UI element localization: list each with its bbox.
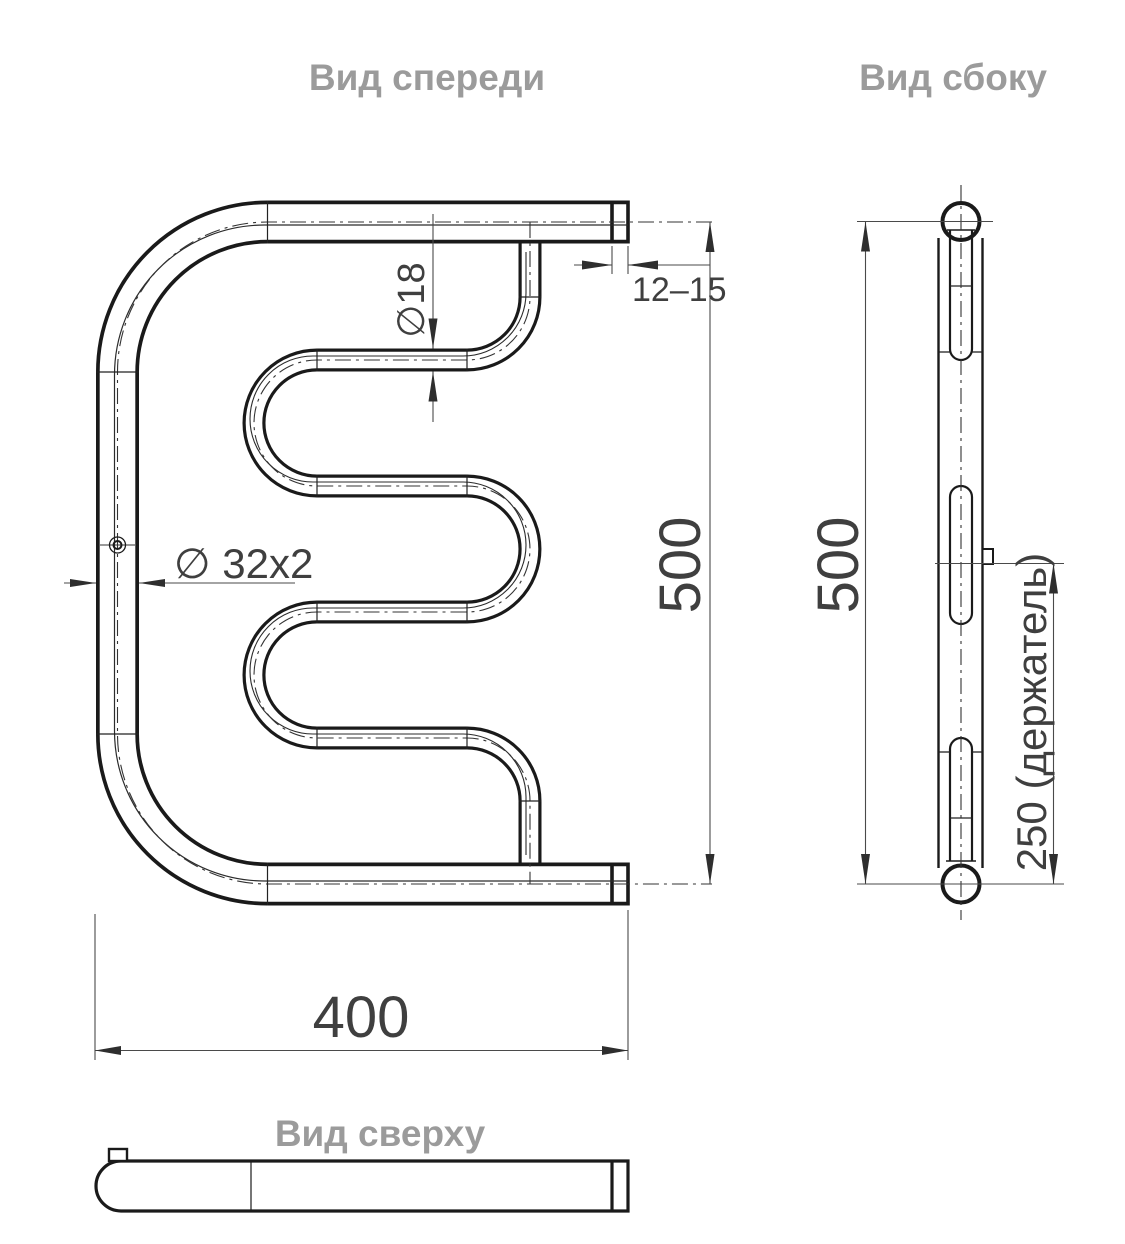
dim-front-height-label: 500 xyxy=(648,517,713,614)
front-dimension-arrows xyxy=(70,222,715,1055)
arrow-down-icon xyxy=(861,854,870,884)
arrow-right-icon xyxy=(602,1046,628,1055)
arrow-up-icon xyxy=(429,372,438,402)
dim-side-height-label: 500 xyxy=(806,517,871,614)
front-view-title: Вид спереди xyxy=(309,57,545,98)
arrow-up-icon xyxy=(861,222,870,252)
top-view-profile xyxy=(96,1161,628,1211)
arrow-left-icon xyxy=(139,579,165,587)
holder-bracket xyxy=(983,549,994,564)
side-view xyxy=(939,185,994,920)
arrow-right-icon xyxy=(582,261,612,270)
top-view-bracket xyxy=(109,1149,127,1161)
drawing-canvas: Вид спереди Вид сбоку Вид сверху ∅18 12–… xyxy=(0,0,1125,1244)
pipe-end-caps xyxy=(612,201,628,906)
dim-tube-diameter-label: ∅18 xyxy=(391,262,433,337)
arrow-down-icon xyxy=(706,854,715,884)
arrow-up-icon xyxy=(706,222,715,252)
dim-pipe-spec-label: ∅ 32x2 xyxy=(174,540,313,587)
front-dimensions xyxy=(64,214,710,1060)
dim-width-label: 400 xyxy=(313,985,410,1050)
top-view xyxy=(96,1149,628,1211)
arrow-left-icon xyxy=(628,261,658,270)
side-view-title: Вид сбоку xyxy=(859,57,1047,98)
dim-end-offset-label: 12–15 xyxy=(632,271,727,309)
tangent-ticks xyxy=(96,201,542,906)
top-view-title: Вид сверху xyxy=(275,1113,486,1154)
arrow-left-icon xyxy=(95,1046,121,1055)
towel-rail-drawing: Вид спереди Вид сбоку Вид сверху ∅18 12–… xyxy=(0,0,1125,1244)
arrow-right-icon xyxy=(70,579,96,587)
dim-holder-label: 250 (держатель) xyxy=(1008,553,1055,872)
